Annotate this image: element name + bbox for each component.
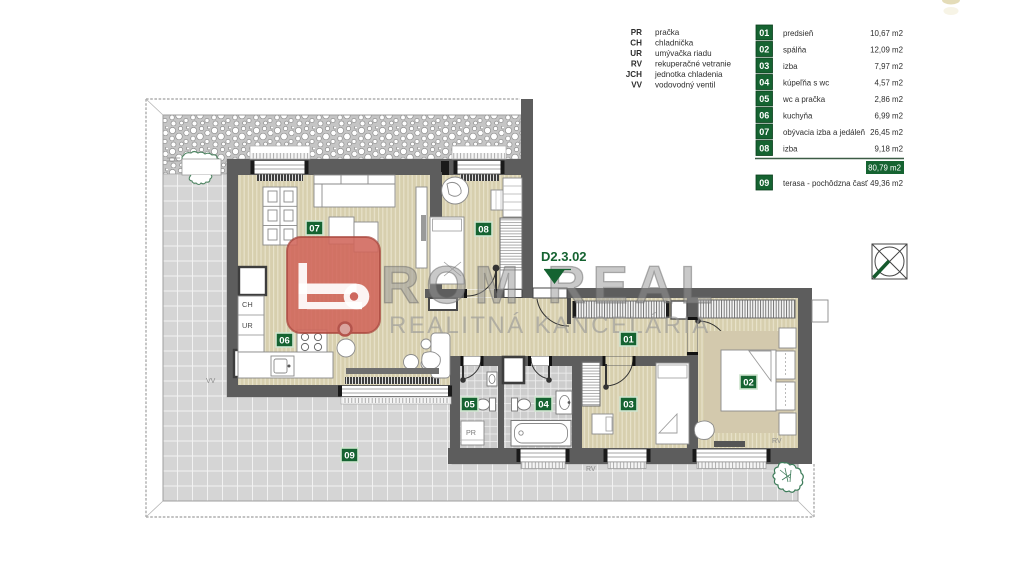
svg-text:04: 04 (759, 78, 769, 88)
svg-text:07: 07 (309, 224, 320, 235)
svg-text:RV: RV (586, 466, 596, 473)
svg-text:02: 02 (743, 378, 754, 389)
svg-text:05: 05 (759, 94, 769, 104)
svg-text:wc a pračka: wc a pračka (782, 95, 826, 104)
svg-text:umývačka riadu: umývačka riadu (655, 49, 712, 58)
svg-text:03: 03 (759, 61, 769, 71)
svg-text:RV: RV (772, 438, 782, 445)
svg-text:6,99 m2: 6,99 m2 (874, 112, 903, 121)
svg-text:05: 05 (464, 400, 475, 411)
svg-text:pračka: pračka (655, 28, 680, 37)
svg-text:obývacia izba a jedáleň: obývacia izba a jedáleň (783, 128, 865, 137)
svg-text:04: 04 (538, 400, 549, 411)
svg-text:kuchyňa: kuchyňa (783, 112, 813, 121)
svg-text:07: 07 (759, 127, 769, 137)
svg-text:PR: PR (466, 428, 476, 437)
svg-text:7,97 m2: 7,97 m2 (874, 62, 903, 71)
svg-text:VV: VV (206, 378, 216, 385)
svg-text:spálňa: spálňa (783, 46, 807, 55)
svg-text:03: 03 (623, 400, 634, 411)
svg-text:UR: UR (630, 49, 642, 58)
svg-text:09: 09 (344, 451, 355, 462)
svg-text:JCH: JCH (626, 70, 642, 79)
svg-text:D2.3.02: D2.3.02 (541, 249, 587, 264)
svg-text:01: 01 (623, 335, 634, 346)
svg-text:9,18 m2: 9,18 m2 (874, 145, 903, 154)
svg-text:02: 02 (759, 45, 769, 55)
svg-text:49,36 m2: 49,36 m2 (870, 179, 903, 188)
svg-text:vodovodný ventil: vodovodný ventil (655, 81, 715, 90)
svg-text:izba: izba (783, 62, 798, 71)
svg-text:RV: RV (631, 60, 643, 69)
svg-text:izba: izba (783, 145, 798, 154)
svg-text:terasa - pochôdzna časť: terasa - pochôdzna časť (783, 179, 869, 188)
svg-text:REALITNÁ KANCELÁRIA: REALITNÁ KANCELÁRIA (389, 312, 711, 339)
svg-text:2,86 m2: 2,86 m2 (874, 95, 903, 104)
svg-text:UR: UR (242, 321, 253, 330)
svg-text:CH: CH (242, 300, 253, 309)
svg-text:predsieň: predsieň (783, 29, 813, 38)
svg-text:12,09 m2: 12,09 m2 (870, 46, 903, 55)
svg-text:VV: VV (631, 81, 642, 90)
svg-text:chladnička: chladnička (655, 39, 694, 48)
svg-text:01: 01 (759, 28, 769, 38)
svg-text:06: 06 (279, 336, 290, 347)
svg-text:ROM REAL: ROM REAL (381, 256, 720, 315)
svg-text:kúpeľňa s wc: kúpeľňa s wc (783, 79, 829, 88)
svg-text:rekuperačné vetranie: rekuperačné vetranie (655, 60, 732, 69)
svg-text:jednotka chladenia: jednotka chladenia (654, 70, 723, 79)
svg-text:PR: PR (631, 28, 642, 37)
svg-text:10,67 m2: 10,67 m2 (870, 29, 903, 38)
svg-text:4,57 m2: 4,57 m2 (874, 79, 903, 88)
svg-text:CH: CH (630, 39, 642, 48)
svg-text:80,79 m2: 80,79 m2 (868, 164, 901, 173)
svg-text:06: 06 (759, 111, 769, 121)
svg-text:26,45 m2: 26,45 m2 (870, 128, 903, 137)
svg-text:08: 08 (478, 225, 489, 236)
svg-text:08: 08 (759, 144, 769, 154)
svg-text:09: 09 (759, 178, 769, 188)
